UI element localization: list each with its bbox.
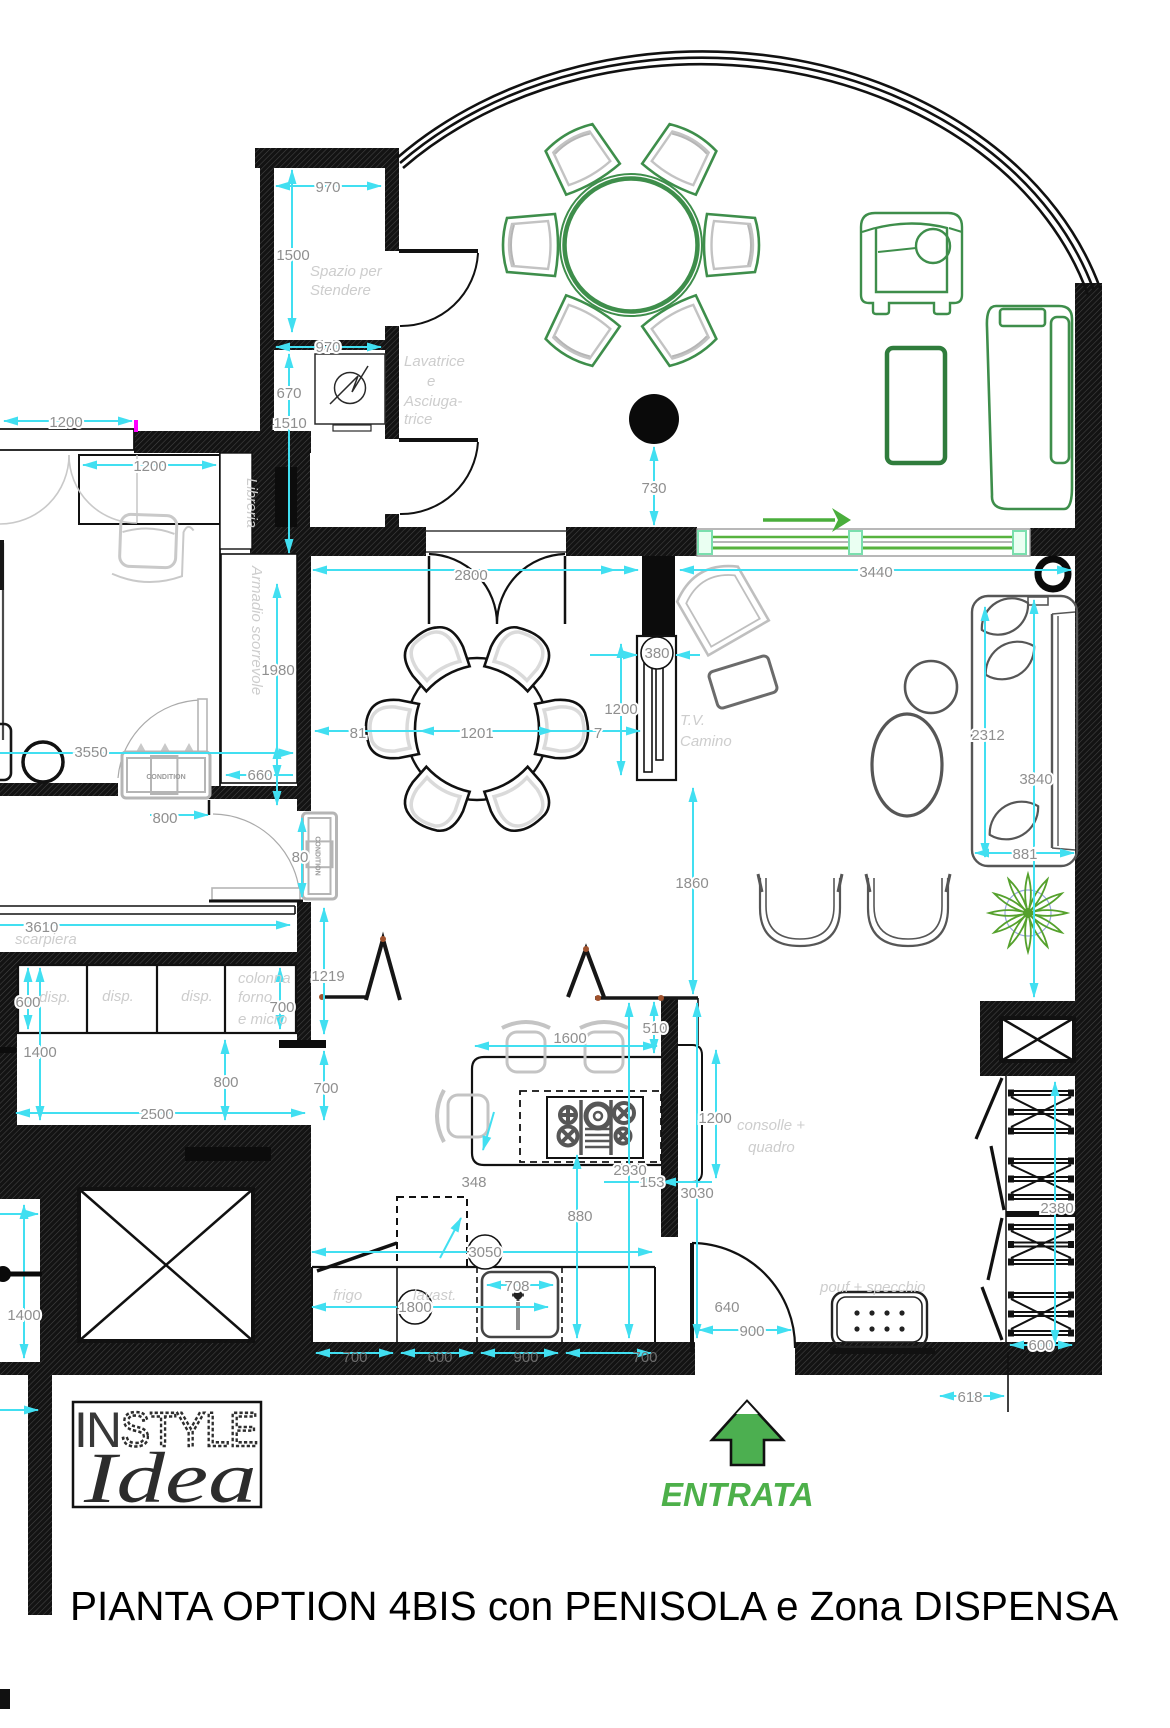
svg-text:Asciuga-: Asciuga- bbox=[403, 393, 462, 410]
svg-text:618: 618 bbox=[957, 1389, 982, 1406]
svg-text:2380: 2380 bbox=[1040, 1200, 1073, 1217]
svg-text:660: 660 bbox=[247, 767, 272, 784]
svg-text:1860: 1860 bbox=[675, 875, 708, 892]
svg-text:1510: 1510 bbox=[273, 415, 306, 432]
svg-text:1201: 1201 bbox=[460, 725, 493, 742]
svg-text:708: 708 bbox=[504, 1278, 529, 1295]
svg-text:Spazio per: Spazio per bbox=[310, 263, 383, 280]
svg-text:consolle +: consolle + bbox=[737, 1117, 805, 1134]
svg-text:scarpiera: scarpiera bbox=[15, 931, 77, 948]
svg-text:CONDITION: CONDITION bbox=[146, 774, 185, 781]
svg-text:trice: trice bbox=[404, 411, 432, 428]
svg-text:730: 730 bbox=[641, 480, 666, 497]
svg-text:153: 153 bbox=[639, 1174, 664, 1191]
svg-text:Armadio scorrevole: Armadio scorrevole bbox=[248, 565, 265, 695]
svg-text:colonna: colonna bbox=[238, 970, 291, 987]
svg-text:1400: 1400 bbox=[7, 1307, 40, 1324]
svg-text:700: 700 bbox=[632, 1349, 657, 1366]
svg-text:1500: 1500 bbox=[276, 247, 309, 264]
svg-text:881: 881 bbox=[1012, 846, 1037, 863]
svg-text:670: 670 bbox=[276, 385, 301, 402]
svg-text:3030: 3030 bbox=[680, 1185, 713, 1202]
svg-text:Idea: Idea bbox=[83, 1438, 257, 1518]
svg-text:600: 600 bbox=[427, 1349, 452, 1366]
svg-text:510: 510 bbox=[642, 1020, 667, 1037]
svg-text:700: 700 bbox=[342, 1349, 367, 1366]
svg-text:880: 880 bbox=[567, 1208, 592, 1225]
svg-text:970: 970 bbox=[315, 179, 340, 196]
svg-text:e micro: e micro bbox=[238, 1011, 287, 1028]
svg-text:1219: 1219 bbox=[311, 968, 344, 985]
svg-text:600: 600 bbox=[1028, 1337, 1053, 1354]
svg-text:970: 970 bbox=[315, 339, 340, 356]
svg-text:640: 640 bbox=[714, 1299, 739, 1316]
svg-text:Stendere: Stendere bbox=[310, 282, 371, 299]
svg-text:900: 900 bbox=[513, 1349, 538, 1366]
svg-text:3550: 3550 bbox=[74, 744, 107, 761]
svg-text:348: 348 bbox=[461, 1174, 486, 1191]
svg-text:Camino: Camino bbox=[680, 733, 732, 750]
svg-text:3440: 3440 bbox=[859, 564, 892, 581]
svg-text:1600: 1600 bbox=[553, 1030, 586, 1047]
svg-text:disp.: disp. bbox=[39, 989, 71, 1006]
svg-text:1200: 1200 bbox=[133, 458, 166, 475]
svg-text:disp.: disp. bbox=[181, 988, 213, 1005]
svg-text:1200: 1200 bbox=[49, 414, 82, 431]
svg-text:CONDITION: CONDITION bbox=[314, 836, 321, 875]
svg-text:700: 700 bbox=[313, 1080, 338, 1097]
svg-text:quadro: quadro bbox=[748, 1139, 795, 1156]
svg-text:frigo: frigo bbox=[333, 1287, 362, 1304]
svg-text:disp.: disp. bbox=[102, 988, 134, 1005]
svg-text:2500: 2500 bbox=[140, 1106, 173, 1123]
svg-text:e: e bbox=[427, 373, 435, 390]
svg-text:1200: 1200 bbox=[604, 701, 637, 718]
svg-text:81: 81 bbox=[350, 725, 367, 742]
svg-text:380: 380 bbox=[644, 645, 669, 662]
svg-text:1980: 1980 bbox=[261, 662, 294, 679]
svg-text:800: 800 bbox=[152, 810, 177, 827]
svg-text:ENTRATA: ENTRATA bbox=[661, 1476, 814, 1513]
svg-text:lavast.: lavast. bbox=[413, 1287, 456, 1304]
svg-text:3840: 3840 bbox=[1019, 771, 1052, 788]
svg-text:2800: 2800 bbox=[454, 567, 487, 584]
svg-text:7: 7 bbox=[594, 725, 602, 742]
svg-text:Lavatrice: Lavatrice bbox=[404, 353, 465, 370]
svg-text:PIANTA OPTION 4BIS con PENISOL: PIANTA OPTION 4BIS con PENISOLA e Zona D… bbox=[70, 1583, 1118, 1629]
svg-text:pouf + specchio: pouf + specchio bbox=[819, 1279, 926, 1296]
svg-text:600: 600 bbox=[15, 994, 40, 1011]
svg-text:1400: 1400 bbox=[23, 1044, 56, 1061]
svg-text:3050: 3050 bbox=[468, 1244, 501, 1261]
svg-text:T.V.: T.V. bbox=[680, 712, 705, 729]
svg-text:2312: 2312 bbox=[971, 727, 1004, 744]
svg-text:1200: 1200 bbox=[698, 1110, 731, 1127]
svg-text:800: 800 bbox=[213, 1074, 238, 1091]
svg-text:Libreria: Libreria bbox=[243, 478, 260, 528]
svg-text:forno: forno bbox=[238, 989, 272, 1006]
svg-text:900: 900 bbox=[739, 1323, 764, 1340]
svg-text:80: 80 bbox=[292, 849, 309, 866]
